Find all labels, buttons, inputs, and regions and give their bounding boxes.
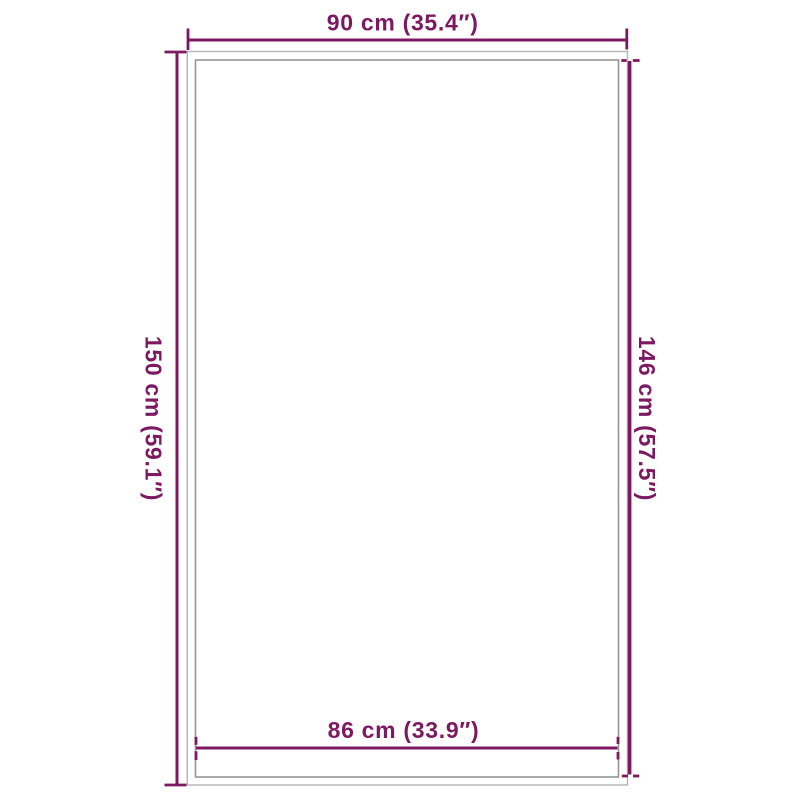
svg-text:150 cm (59.1″): 150 cm (59.1″) [141, 336, 167, 501]
svg-text:90 cm (35.4″): 90 cm (35.4″) [327, 10, 479, 36]
svg-text:86 cm (33.9″): 86 cm (33.9″) [328, 717, 480, 743]
svg-text:146 cm (57.5″): 146 cm (57.5″) [634, 336, 660, 501]
